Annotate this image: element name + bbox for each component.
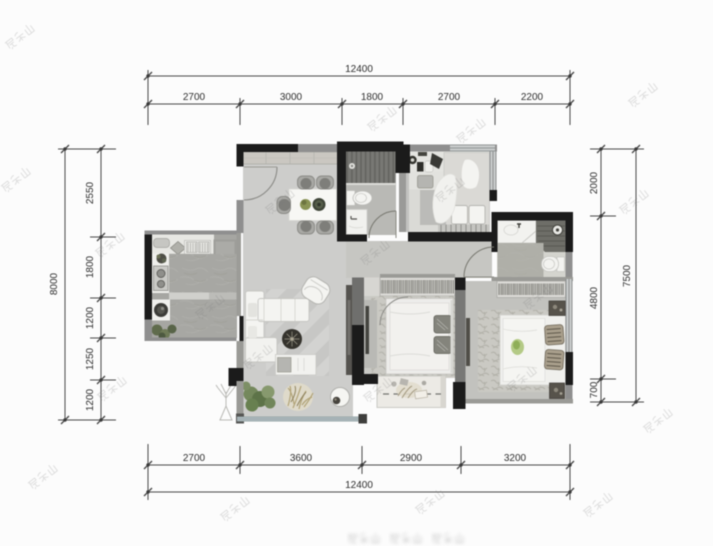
svg-text:2000: 2000 xyxy=(589,171,600,194)
svg-text:2550: 2550 xyxy=(85,181,96,204)
svg-text:1250: 1250 xyxy=(85,347,96,370)
svg-text:2700: 2700 xyxy=(183,453,206,464)
svg-text:12400: 12400 xyxy=(345,480,373,491)
svg-text:3000: 3000 xyxy=(280,92,303,103)
svg-text:700: 700 xyxy=(589,381,600,398)
svg-text:12400: 12400 xyxy=(345,64,373,75)
svg-text:1200: 1200 xyxy=(85,306,96,329)
svg-text:8000: 8000 xyxy=(49,272,60,295)
svg-text:4800: 4800 xyxy=(589,286,600,309)
svg-text:2200: 2200 xyxy=(521,92,544,103)
svg-text:3200: 3200 xyxy=(504,453,527,464)
svg-text:1800: 1800 xyxy=(361,92,384,103)
svg-text:7500: 7500 xyxy=(622,264,633,287)
svg-text:3600: 3600 xyxy=(290,453,313,464)
svg-text:2700: 2700 xyxy=(438,92,461,103)
svg-text:2900: 2900 xyxy=(400,453,423,464)
svg-text:1200: 1200 xyxy=(85,388,96,411)
svg-text:2700: 2700 xyxy=(183,92,206,103)
svg-text:1800: 1800 xyxy=(85,255,96,278)
